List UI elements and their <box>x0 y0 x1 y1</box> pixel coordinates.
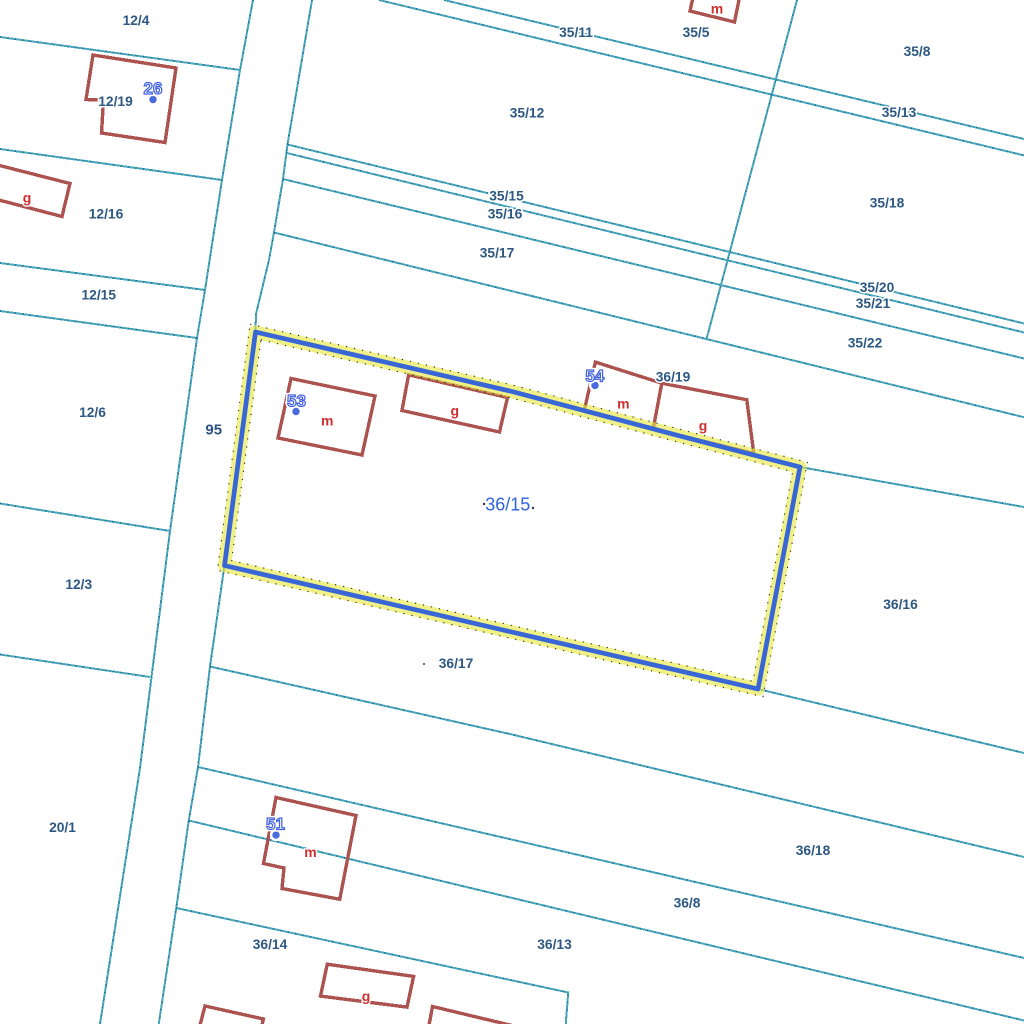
svg-text:53: 53 <box>287 392 306 411</box>
svg-text:26: 26 <box>144 79 163 98</box>
svg-text:36/16: 36/16 <box>883 597 918 612</box>
svg-text:m: m <box>304 844 316 860</box>
svg-text:35/12: 35/12 <box>510 106 545 121</box>
svg-text:12/16: 12/16 <box>89 207 124 222</box>
svg-text:12/15: 12/15 <box>81 288 116 303</box>
svg-text:95: 95 <box>205 422 222 439</box>
svg-text:36/17: 36/17 <box>439 656 474 671</box>
svg-text:g: g <box>699 418 708 434</box>
svg-text:35/22: 35/22 <box>848 336 883 351</box>
svg-text:m: m <box>711 1 723 17</box>
svg-text:12/4: 12/4 <box>123 13 150 28</box>
svg-text:g: g <box>450 403 459 419</box>
svg-text:35/11: 35/11 <box>559 25 593 40</box>
svg-text:36/18: 36/18 <box>796 843 831 858</box>
svg-text:35/21: 35/21 <box>856 296 891 311</box>
svg-text:12/6: 12/6 <box>79 405 106 420</box>
svg-text:12/19: 12/19 <box>98 94 133 109</box>
svg-text:35/17: 35/17 <box>480 246 515 261</box>
svg-text:36/13: 36/13 <box>537 937 572 952</box>
svg-text:g: g <box>23 190 32 206</box>
svg-text:12/3: 12/3 <box>65 577 92 592</box>
svg-text:35/5: 35/5 <box>683 25 710 40</box>
svg-text:35/20: 35/20 <box>860 280 895 295</box>
svg-text:m: m <box>617 396 629 412</box>
svg-text:m: m <box>321 413 333 429</box>
svg-text:35/16: 35/16 <box>488 206 523 221</box>
svg-text:36/15: 36/15 <box>485 495 530 515</box>
svg-text:20/1: 20/1 <box>49 820 76 835</box>
svg-text:g: g <box>362 988 371 1004</box>
svg-text:36/19: 36/19 <box>656 370 691 385</box>
svg-text:54: 54 <box>585 367 604 386</box>
svg-text:35/15: 35/15 <box>489 188 524 203</box>
svg-text:35/18: 35/18 <box>870 196 905 211</box>
svg-text:36/14: 36/14 <box>253 937 288 952</box>
svg-text:36/8: 36/8 <box>674 896 701 911</box>
svg-text:35/13: 35/13 <box>882 105 917 120</box>
svg-text:35/8: 35/8 <box>904 44 931 59</box>
svg-text:51: 51 <box>266 815 285 834</box>
